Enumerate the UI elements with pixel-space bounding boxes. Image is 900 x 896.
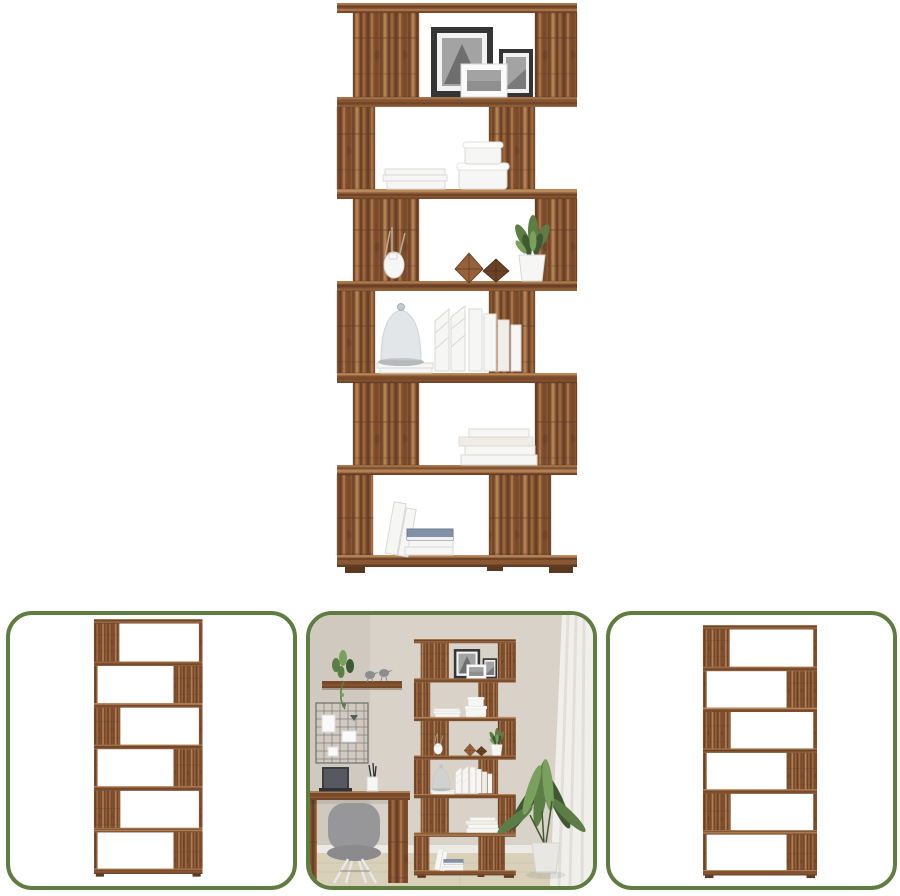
bookcase (703, 625, 817, 878)
bookcase-illustration (0, 0, 900, 580)
wall-shelf (322, 681, 402, 690)
bookcase-front-illustration (610, 615, 893, 886)
thumbnail-angled-view[interactable] (6, 611, 297, 890)
room-scene-illustration (310, 615, 593, 886)
laptop (319, 767, 352, 792)
bookcase (337, 3, 577, 573)
thumbnail-gallery (6, 611, 897, 890)
product-main-image[interactable] (0, 0, 900, 580)
thumbnail-front-view[interactable] (606, 611, 897, 890)
bookcase (94, 619, 202, 877)
bookcase-angled-illustration (10, 615, 293, 886)
product-gallery (0, 0, 900, 896)
thumbnail-room-scene[interactable] (306, 611, 597, 890)
